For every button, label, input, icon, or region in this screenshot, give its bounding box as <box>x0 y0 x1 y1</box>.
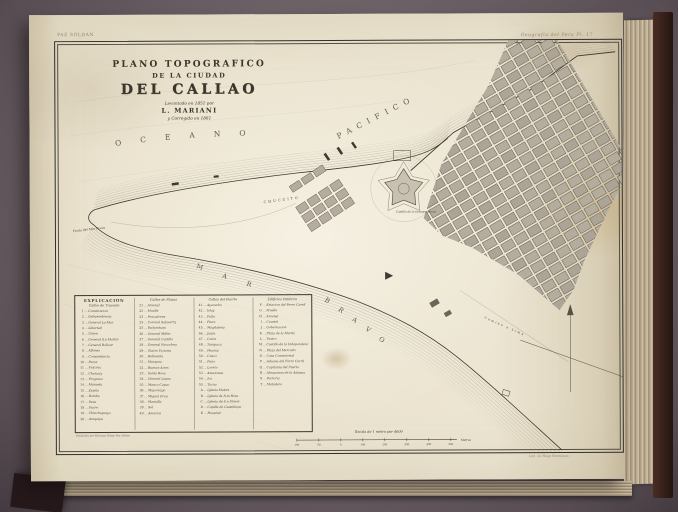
city-block <box>390 138 405 152</box>
city-block <box>386 280 401 294</box>
city-block <box>460 288 475 302</box>
city-block <box>471 307 486 321</box>
city-block <box>475 343 490 357</box>
city-block <box>414 328 429 342</box>
city-block <box>375 83 390 97</box>
city-block <box>401 68 416 82</box>
city-block <box>421 310 436 324</box>
city-block <box>390 227 405 241</box>
label-bravo: BRAVO <box>323 296 396 352</box>
city-block <box>410 113 425 127</box>
svg-text:OCEANO: OCEANO <box>115 128 265 147</box>
city-block <box>619 55 623 69</box>
city-block <box>388 75 403 89</box>
city-block <box>454 100 469 114</box>
punta-cape-tip <box>89 210 94 225</box>
city-block <box>371 225 386 239</box>
city-block <box>292 118 307 132</box>
city-block <box>458 314 473 328</box>
legend-columns: EXPLICACIONCalles de Travesia1...Constit… <box>75 295 312 432</box>
city-block <box>425 257 440 271</box>
legend-column-header: Calles de Travesia <box>78 303 130 307</box>
legend-column-header: Calles de Plazas <box>138 298 190 302</box>
city-block <box>305 111 320 125</box>
legend-entry: E...Hospital <box>197 410 249 416</box>
city-block <box>528 286 543 300</box>
city-block <box>582 318 597 332</box>
scale-tick-label: 200 <box>382 442 387 446</box>
city-block <box>553 40 568 44</box>
city-block <box>608 40 623 50</box>
svg-text:BRAVO: BRAVO <box>323 296 396 352</box>
city-block <box>401 246 416 260</box>
label-castillo: Castillo de la Independencia <box>396 210 437 214</box>
city-block <box>336 105 351 119</box>
legend-entry-part: Arequipa <box>89 416 103 422</box>
city-block <box>425 79 440 93</box>
city-block <box>364 242 379 256</box>
city-block <box>597 106 612 120</box>
city-block <box>493 345 508 359</box>
city-block <box>397 121 412 135</box>
city-block <box>382 244 397 258</box>
city-block <box>497 292 512 306</box>
city-block <box>445 54 460 68</box>
atlas-photo: PAZ SOLDAN Geografia del Peru Pl. 17 Lit… <box>0 0 678 512</box>
city-block <box>599 258 614 272</box>
city-block <box>427 320 442 334</box>
city-block <box>417 96 432 110</box>
city-block <box>569 326 584 340</box>
city-block <box>438 71 453 85</box>
city-block <box>445 322 460 336</box>
legend-column: Calles de Plazas21...Arsenal22...Muelle2… <box>134 298 190 430</box>
city-block <box>375 261 390 275</box>
city-block <box>550 324 565 338</box>
city-block <box>395 58 410 72</box>
city-block <box>508 311 523 325</box>
legend-entry-part: America <box>148 410 161 416</box>
city-block <box>419 69 434 83</box>
city-block <box>593 248 608 262</box>
city-block <box>600 320 615 334</box>
city-block <box>395 236 410 250</box>
city-block <box>614 135 623 149</box>
city-block <box>584 292 599 306</box>
city-block <box>421 43 436 57</box>
city-block <box>403 130 418 144</box>
city-block <box>606 62 621 76</box>
city-block <box>347 214 362 228</box>
city-block <box>297 128 312 142</box>
map-neatline-frame: OCEANO PACIFICO MAR BRAVO Punta del Mar … <box>54 39 624 455</box>
city-block <box>536 358 551 372</box>
scale-bar: Escala de 1 metro por 4000 Metros 100500… <box>294 429 471 446</box>
city-block <box>515 294 530 308</box>
book-page-edges-right <box>624 20 654 485</box>
city-block <box>456 252 471 266</box>
city-block <box>403 309 418 323</box>
shore-block <box>289 180 302 192</box>
city-block <box>615 197 623 211</box>
city-block <box>488 335 503 349</box>
city-block <box>388 253 403 267</box>
label-chucuito: CHUCUITO <box>263 196 299 205</box>
city-block <box>414 60 429 74</box>
city-block <box>604 267 619 281</box>
city-block <box>478 290 493 304</box>
city-block <box>490 41 505 55</box>
legend-entry: T...Matadero <box>257 381 309 387</box>
lithographer-imprint: Lith. de Hage Hermanos <box>529 454 569 458</box>
city-block <box>610 277 623 291</box>
plate-label-geografia: Geografia del Peru Pl. 17 <box>521 33 593 38</box>
city-block <box>502 301 517 315</box>
city-block <box>587 328 602 342</box>
city-block <box>367 189 382 203</box>
city-block <box>593 70 608 84</box>
city-block <box>344 88 359 102</box>
city-block <box>406 77 421 91</box>
city-block <box>369 252 384 266</box>
city-block <box>441 286 456 300</box>
city-block <box>449 90 464 104</box>
city-block <box>469 333 484 347</box>
city-block <box>312 94 327 108</box>
city-block <box>355 196 370 210</box>
city-block <box>612 72 623 86</box>
city-block <box>588 60 603 74</box>
city-block <box>449 269 464 283</box>
city-block <box>408 318 423 332</box>
city-block <box>360 206 375 220</box>
label-pacifico: PACIFICO <box>335 94 417 141</box>
city-block <box>443 259 458 273</box>
city-block <box>465 297 480 311</box>
city-block <box>510 284 525 298</box>
city-block <box>601 53 616 67</box>
city-block <box>606 241 621 255</box>
city-block <box>366 126 381 140</box>
city-block <box>466 40 481 44</box>
city-block <box>451 242 466 256</box>
city-block <box>617 260 623 274</box>
city-block <box>316 130 331 144</box>
shore-block <box>301 173 314 185</box>
city-block <box>613 313 622 327</box>
city-block <box>471 40 486 53</box>
city-block <box>379 208 394 222</box>
city-block <box>299 101 314 115</box>
city-block <box>451 331 466 345</box>
city-block <box>473 280 488 294</box>
city-block <box>338 79 353 93</box>
scale-tick-label: 300 <box>404 442 409 446</box>
city-block <box>563 317 578 331</box>
city-block <box>286 109 301 123</box>
city-block <box>303 138 318 152</box>
plate-label-paz-soldan: PAZ SOLDAN <box>57 33 94 38</box>
city-block <box>613 224 622 238</box>
book-cover-right <box>653 12 673 498</box>
city-block <box>615 286 623 300</box>
city-block <box>412 265 427 279</box>
city-block <box>406 255 421 269</box>
label-oceano: OCEANO <box>115 128 265 147</box>
city-block <box>338 168 353 182</box>
legend-entry-part: Hospital <box>207 410 220 416</box>
city-block <box>512 347 527 361</box>
city-block <box>377 234 392 248</box>
city-block <box>612 250 623 264</box>
city-block <box>504 275 519 289</box>
city-block <box>562 343 577 357</box>
scale-tick-label: 100 <box>294 443 299 447</box>
city-block <box>604 89 619 103</box>
city-block <box>462 83 477 97</box>
city-block <box>430 88 445 102</box>
city-block <box>379 119 394 133</box>
city-block <box>456 341 471 355</box>
city-block <box>393 263 408 277</box>
city-block <box>595 311 610 325</box>
city-block <box>506 337 521 351</box>
city-block <box>486 362 501 376</box>
city-block <box>619 233 623 247</box>
city-block <box>591 275 606 289</box>
city-block <box>392 111 407 125</box>
city-block <box>499 265 514 279</box>
legend-box: EXPLICACIONCalles de Travesia1...Constit… <box>74 294 313 433</box>
city-block <box>576 309 591 323</box>
city-block <box>332 158 347 172</box>
city-block <box>414 238 429 252</box>
scale-tick-label: 0 <box>340 442 342 446</box>
city-block <box>447 295 462 309</box>
city-block <box>377 56 392 70</box>
city-block <box>447 40 462 42</box>
city-block <box>539 305 554 319</box>
city-block <box>571 40 586 46</box>
city-block <box>343 177 358 191</box>
city-block <box>558 40 573 54</box>
city-block <box>427 52 442 66</box>
city-block <box>608 125 623 139</box>
city-block <box>351 160 366 174</box>
city-block <box>362 179 377 193</box>
city-block <box>321 139 336 153</box>
city-block <box>345 151 360 165</box>
city-block <box>556 334 571 348</box>
city-block <box>419 248 434 262</box>
city-block <box>391 290 406 304</box>
legend-column: Calles del Puerto41...Ayacucho42...Islay… <box>193 297 249 429</box>
city-block <box>621 296 623 310</box>
legend-column-header: Calles del Puerto <box>197 297 249 301</box>
city-block <box>499 354 514 368</box>
city-block <box>452 394 467 408</box>
city-block <box>358 233 373 247</box>
city-block <box>486 273 501 287</box>
city-block <box>580 78 595 92</box>
city-block <box>356 81 371 95</box>
city-block <box>390 49 405 63</box>
city-block <box>510 373 525 387</box>
city-block <box>602 294 617 308</box>
atlas-page: PAZ SOLDAN Geografia del Peru Pl. 17 Lit… <box>29 13 625 482</box>
city-block <box>599 79 614 93</box>
city-block <box>436 98 451 112</box>
city-block <box>393 85 408 99</box>
city-street-grid <box>286 40 623 418</box>
city-block <box>475 254 490 268</box>
city-block <box>397 299 412 313</box>
city-block <box>517 356 532 370</box>
city-block <box>408 229 423 243</box>
shore-block <box>313 165 326 177</box>
legend-entry-part: Matadero <box>267 382 282 388</box>
city-block <box>462 261 477 275</box>
svg-text:Camino a Lima: Camino a Lima <box>484 315 526 337</box>
city-block <box>438 250 453 264</box>
city-block <box>464 56 479 70</box>
city-block <box>436 276 451 290</box>
city-block <box>610 98 623 112</box>
scale-tick-label: 500 <box>448 442 453 446</box>
city-block <box>477 49 492 63</box>
city-block <box>369 73 384 87</box>
city-block <box>362 90 377 104</box>
city-block <box>578 282 593 296</box>
city-block <box>582 51 597 65</box>
city-block <box>458 404 473 418</box>
city-block <box>417 274 432 288</box>
fortress-star-wall <box>385 169 423 205</box>
book-page-edges-bottom <box>42 481 632 496</box>
city-block <box>443 81 458 95</box>
label-punta-mar-brava: Punta del Mar Brava <box>72 226 106 234</box>
city-block <box>608 303 623 317</box>
city-block <box>452 305 467 319</box>
city-block <box>440 45 455 59</box>
city-block <box>349 98 364 112</box>
city-block <box>521 303 536 317</box>
city-block <box>430 267 445 281</box>
city-block <box>538 332 553 346</box>
scale-tick-label: 50 <box>317 443 321 447</box>
city-block <box>432 329 447 343</box>
city-block <box>621 207 623 221</box>
city-block <box>597 284 612 298</box>
city-block <box>591 97 606 111</box>
city-block <box>323 113 338 127</box>
city-block <box>410 291 425 305</box>
city-block <box>530 349 545 363</box>
city-block <box>442 108 457 122</box>
city-block <box>464 324 479 338</box>
city-block <box>453 40 468 51</box>
city-block <box>467 271 482 285</box>
svg-text:PACIFICO: PACIFICO <box>335 94 417 141</box>
city-block <box>586 87 601 101</box>
legend-entry: 40...America <box>138 410 190 416</box>
city-block <box>416 40 431 48</box>
scale-tick-label: 100 <box>360 442 365 446</box>
city-block <box>575 68 590 82</box>
city-block <box>571 299 586 313</box>
city-block <box>325 86 340 100</box>
city-block <box>469 66 484 80</box>
city-block <box>532 322 547 336</box>
city-block <box>526 313 541 327</box>
city-block <box>423 284 438 298</box>
legend-column: EXPLICACIONCalles de Travesia1...Constit… <box>78 298 130 430</box>
city-block <box>614 45 623 59</box>
city-block <box>427 231 442 245</box>
city-block <box>425 347 440 361</box>
city-block <box>417 185 432 199</box>
scale-tick-label: 400 <box>426 442 431 446</box>
city-block <box>356 170 371 184</box>
city-block <box>608 214 623 228</box>
city-block <box>408 50 423 64</box>
city-block <box>589 301 604 315</box>
city-block <box>351 71 366 85</box>
city-block <box>545 315 560 329</box>
publisher-imprint: Publicado por Mariano Felipe Paz Soldan <box>75 433 131 437</box>
city-block <box>523 366 538 380</box>
city-block <box>575 336 590 350</box>
compass-needle <box>520 305 623 393</box>
legend-column: Edificios PublicosF...Estacion del Ferro… <box>253 297 309 429</box>
city-block <box>399 272 414 286</box>
city-block <box>403 41 418 55</box>
scale-label: Escala de 1 metro por 4000 <box>354 430 404 434</box>
city-block <box>415 301 430 315</box>
city-block <box>621 117 623 131</box>
city-block <box>404 282 419 296</box>
city-block <box>432 240 447 254</box>
city-block <box>382 66 397 80</box>
city-block <box>416 212 431 226</box>
city-block <box>586 265 601 279</box>
city-block <box>484 40 499 46</box>
city-block <box>421 221 436 235</box>
city-block <box>454 278 469 292</box>
city-block <box>480 352 495 366</box>
city-block <box>491 371 506 385</box>
city-block <box>456 73 471 87</box>
city-block <box>423 106 438 120</box>
city-block <box>432 62 447 76</box>
city-block <box>458 47 473 61</box>
city-block <box>534 296 549 310</box>
city-block <box>504 364 519 378</box>
legend-entry: 20...Arequipa <box>79 416 131 422</box>
city-block <box>366 215 381 229</box>
city-block <box>480 263 495 277</box>
city-block <box>384 128 399 142</box>
city-block <box>617 81 623 95</box>
city-block <box>434 40 449 50</box>
peninsula-road <box>111 203 296 228</box>
city-block <box>310 120 325 134</box>
city-block <box>482 326 497 340</box>
city-block <box>403 219 418 233</box>
legend-title: EXPLICACION <box>78 298 130 303</box>
city-block <box>601 231 616 245</box>
legend-column-header: Edificios Publicos <box>256 297 308 301</box>
